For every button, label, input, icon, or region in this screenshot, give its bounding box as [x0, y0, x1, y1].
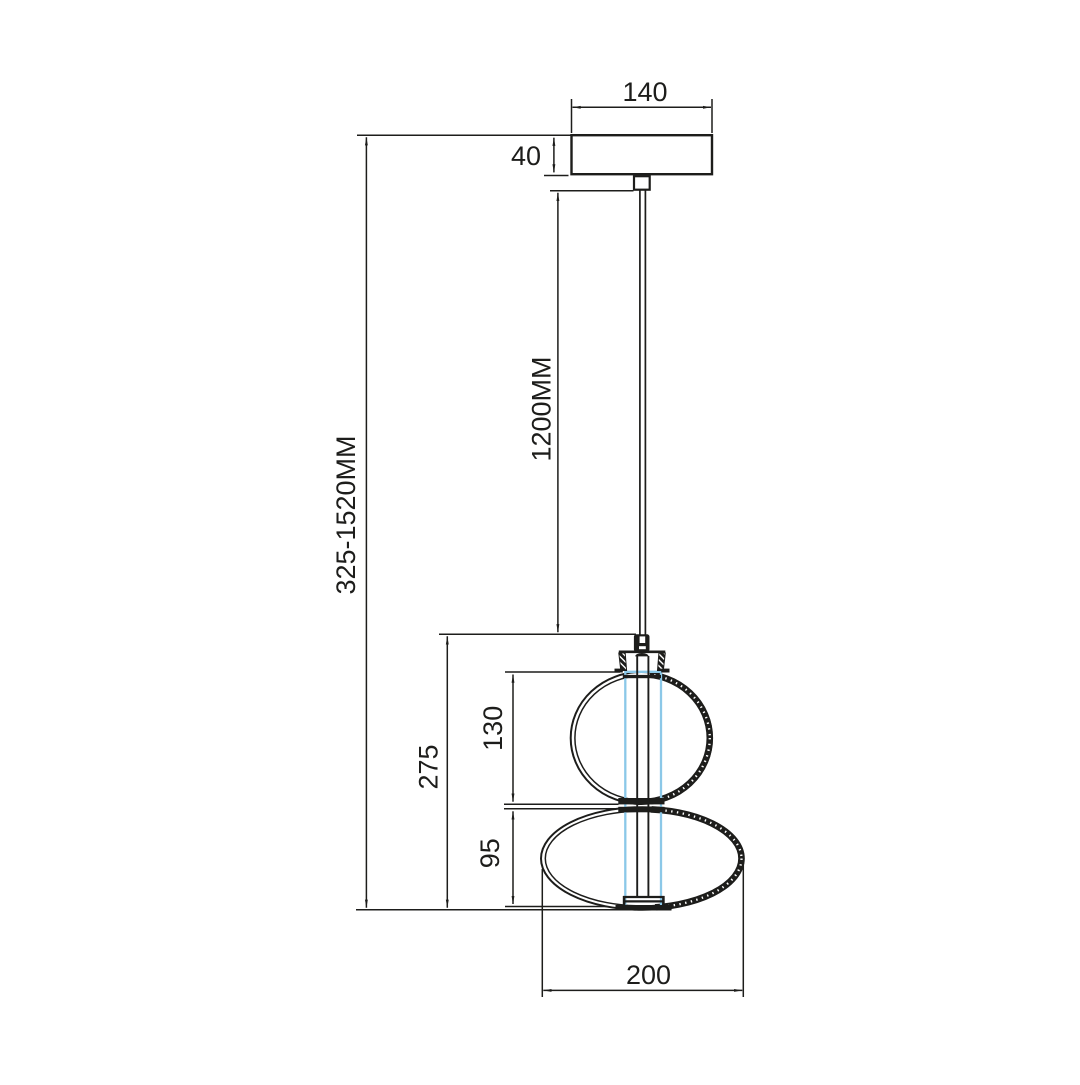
svg-text:325-1520MM: 325-1520MM — [331, 435, 361, 594]
svg-text:130: 130 — [478, 706, 508, 751]
svg-text:40: 40 — [511, 141, 541, 171]
svg-text:140: 140 — [622, 77, 667, 107]
svg-text:275: 275 — [414, 744, 444, 789]
svg-text:200: 200 — [626, 960, 671, 990]
svg-text:1200MM: 1200MM — [527, 356, 557, 461]
svg-text:95: 95 — [475, 838, 505, 868]
